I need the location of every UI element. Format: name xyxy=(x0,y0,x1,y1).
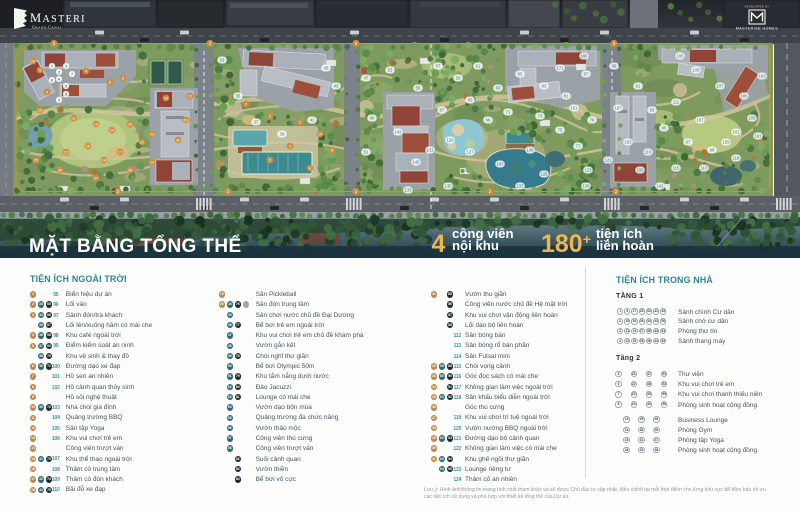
svg-text:51: 51 xyxy=(364,150,369,155)
svg-text:171: 171 xyxy=(557,66,565,71)
svg-text:6: 6 xyxy=(51,78,53,82)
svg-text:24: 24 xyxy=(164,96,168,100)
svg-text:11: 11 xyxy=(72,116,76,120)
svg-text:17: 17 xyxy=(118,150,122,154)
svg-text:26: 26 xyxy=(58,168,62,172)
svg-text:3: 3 xyxy=(269,114,271,118)
svg-text:47: 47 xyxy=(364,76,369,81)
svg-text:5: 5 xyxy=(65,84,67,88)
svg-text:8: 8 xyxy=(331,148,333,152)
svg-text:61: 61 xyxy=(476,64,481,69)
svg-text:4: 4 xyxy=(85,69,87,73)
svg-text:71: 71 xyxy=(506,110,511,115)
svg-text:DEVELOPED BY: DEVELOPED BY xyxy=(745,5,770,9)
svg-text:137: 137 xyxy=(517,184,525,189)
svg-text:20: 20 xyxy=(31,59,35,63)
svg-text:161: 161 xyxy=(755,134,763,139)
svg-text:12: 12 xyxy=(188,94,192,98)
svg-text:63: 63 xyxy=(496,86,501,91)
svg-text:7: 7 xyxy=(71,72,73,76)
svg-text:91: 91 xyxy=(636,84,641,89)
svg-text:133: 133 xyxy=(405,188,413,193)
svg-text:3: 3 xyxy=(65,64,67,68)
svg-text:131: 131 xyxy=(427,148,435,153)
svg-text:53: 53 xyxy=(388,68,393,73)
svg-text:121: 121 xyxy=(605,158,613,163)
svg-text:5: 5 xyxy=(39,68,41,72)
svg-text:109: 109 xyxy=(693,68,701,73)
svg-text:113: 113 xyxy=(645,150,652,155)
svg-text:127: 127 xyxy=(467,150,475,155)
svg-text:14: 14 xyxy=(110,128,114,132)
svg-text:GRAND CANAL: GRAND CANAL xyxy=(32,25,63,30)
svg-text:67: 67 xyxy=(440,108,445,113)
svg-text:31: 31 xyxy=(184,118,188,122)
svg-text:85: 85 xyxy=(518,72,523,77)
svg-text:18: 18 xyxy=(102,158,106,162)
svg-text:163: 163 xyxy=(759,74,767,79)
svg-text:73: 73 xyxy=(538,114,543,119)
svg-text:125: 125 xyxy=(541,172,549,177)
svg-text:16: 16 xyxy=(86,144,90,148)
svg-text:145: 145 xyxy=(413,160,421,165)
svg-text:MASTERISE HOMES: MASTERISE HOMES xyxy=(736,27,779,31)
svg-text:159: 159 xyxy=(723,140,731,145)
svg-text:143: 143 xyxy=(395,130,403,135)
svg-text:MASTERI: MASTERI xyxy=(30,11,86,25)
svg-text:19: 19 xyxy=(318,132,322,136)
svg-text:75: 75 xyxy=(558,128,563,133)
svg-text:87: 87 xyxy=(584,72,589,77)
svg-text:123: 123 xyxy=(585,168,593,173)
svg-text:37: 37 xyxy=(254,120,259,125)
svg-text:2: 2 xyxy=(58,70,60,74)
svg-text:157: 157 xyxy=(697,118,705,123)
svg-text:22: 22 xyxy=(140,140,144,144)
svg-text:169: 169 xyxy=(581,54,589,59)
svg-text:23: 23 xyxy=(150,132,154,136)
svg-text:35: 35 xyxy=(236,94,241,99)
svg-text:59: 59 xyxy=(456,76,461,81)
svg-text:107: 107 xyxy=(717,84,725,89)
svg-text:39: 39 xyxy=(280,132,285,137)
svg-text:93: 93 xyxy=(650,108,655,113)
svg-text:6: 6 xyxy=(109,80,111,84)
svg-text:57: 57 xyxy=(436,64,441,69)
svg-text:117: 117 xyxy=(701,166,708,171)
svg-text:97: 97 xyxy=(686,140,691,145)
svg-text:21: 21 xyxy=(64,150,68,154)
svg-text:147: 147 xyxy=(497,162,505,167)
svg-text:105: 105 xyxy=(741,94,749,99)
svg-text:139: 139 xyxy=(583,184,591,189)
svg-text:83: 83 xyxy=(542,84,547,89)
svg-text:103: 103 xyxy=(749,116,757,121)
svg-text:149: 149 xyxy=(527,148,535,153)
svg-text:119: 119 xyxy=(733,156,740,161)
svg-text:167: 167 xyxy=(615,106,623,111)
svg-text:27: 27 xyxy=(94,176,98,180)
svg-text:153: 153 xyxy=(625,140,633,145)
svg-text:2: 2 xyxy=(299,120,301,124)
svg-text:43: 43 xyxy=(334,84,339,89)
svg-text:79: 79 xyxy=(590,118,595,123)
svg-text:1: 1 xyxy=(51,64,53,68)
svg-text:1: 1 xyxy=(289,144,291,148)
svg-text:7: 7 xyxy=(245,102,247,106)
svg-text:155: 155 xyxy=(637,168,645,173)
svg-text:69: 69 xyxy=(486,118,491,123)
svg-text:9: 9 xyxy=(46,90,48,94)
svg-text:55: 55 xyxy=(416,86,421,91)
svg-text:33: 33 xyxy=(220,58,225,63)
svg-text:9: 9 xyxy=(58,98,60,102)
svg-text:4: 4 xyxy=(58,77,60,81)
svg-text:165: 165 xyxy=(677,54,685,59)
svg-text:65: 65 xyxy=(468,98,473,103)
svg-text:45: 45 xyxy=(324,66,329,71)
svg-text:25: 25 xyxy=(34,158,38,162)
svg-text:6: 6 xyxy=(309,166,311,170)
svg-text:13: 13 xyxy=(94,122,98,126)
svg-text:49: 49 xyxy=(370,116,375,121)
svg-text:8: 8 xyxy=(122,76,124,80)
svg-text:81: 81 xyxy=(564,94,569,99)
svg-text:115: 115 xyxy=(673,166,680,171)
svg-text:77: 77 xyxy=(576,144,581,149)
svg-text:29: 29 xyxy=(150,160,154,164)
svg-text:111: 111 xyxy=(673,100,680,105)
svg-text:141: 141 xyxy=(657,184,665,189)
svg-text:101: 101 xyxy=(733,130,741,135)
svg-text:89: 89 xyxy=(612,64,617,69)
svg-text:151: 151 xyxy=(571,106,579,111)
svg-text:41: 41 xyxy=(310,118,315,123)
svg-text:15: 15 xyxy=(128,122,132,126)
svg-text:135: 135 xyxy=(445,184,453,189)
svg-text:10: 10 xyxy=(38,108,42,112)
svg-text:8: 8 xyxy=(65,92,67,96)
svg-text:95: 95 xyxy=(662,126,667,131)
svg-text:129: 129 xyxy=(447,138,455,143)
svg-text:30: 30 xyxy=(176,138,180,142)
svg-text:99: 99 xyxy=(710,148,715,153)
svg-text:28: 28 xyxy=(128,168,132,172)
svg-text:5: 5 xyxy=(269,158,271,162)
